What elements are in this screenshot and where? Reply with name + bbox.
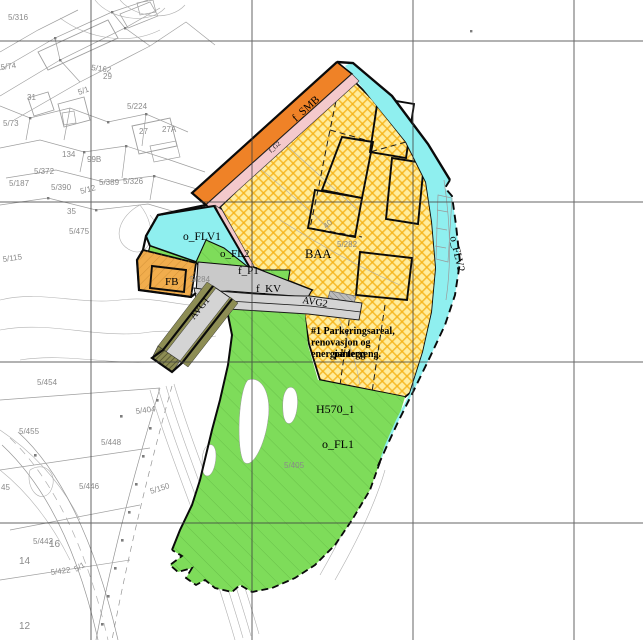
- zone-label: FB: [165, 276, 178, 288]
- cadastral-label: 5/115: [2, 252, 23, 264]
- zone-label: H570_1: [316, 402, 355, 416]
- cadastral-label: 14: [19, 556, 31, 567]
- zone-label: f_P1: [238, 265, 259, 277]
- cadastral-label: 5/12: [79, 183, 97, 196]
- map-svg: 5/3165/745/162295/1315/2245/732727A13499…: [0, 0, 643, 640]
- cadastral-label: 5/389: [99, 178, 120, 187]
- cadastral-label: 5/282: [337, 240, 358, 249]
- cadastral-label: 5/224: [127, 102, 148, 111]
- plan-zones-layer: [137, 62, 460, 592]
- cadastral-label: 5/405: [284, 461, 305, 470]
- cadastral-label: 5/372: [34, 167, 55, 176]
- cadastral-label: 5/422: [50, 565, 72, 577]
- cadastral-label: 134: [62, 150, 76, 159]
- cadastral-label: 5/455: [19, 427, 40, 436]
- cadastral-label: 29: [103, 72, 112, 81]
- plan-note-line: på terreng.: [334, 349, 382, 360]
- zone-label: o_FL1: [322, 437, 354, 451]
- cadastral-label: 5/326: [123, 177, 144, 186]
- cadastral-label: 5/74: [0, 61, 17, 72]
- zoning-plan-map-canvas[interactable]: 5/3165/745/162295/1315/2245/732727A13499…: [0, 0, 643, 640]
- cadastral-label: 5/390: [51, 183, 72, 192]
- cadastral-label: 31: [27, 93, 36, 102]
- cadastral-label: 5/446: [79, 482, 100, 491]
- cadastral-label: 5/150: [149, 481, 171, 496]
- cadastral-label: 99B: [87, 155, 101, 164]
- cadastral-label: 5/1: [77, 84, 91, 96]
- zone-label: o_FL2: [220, 248, 249, 260]
- cadastral-label: 5/448: [101, 438, 122, 447]
- cadastral-label: 5/454: [37, 378, 58, 387]
- cadastral-label: 27A: [162, 125, 177, 134]
- plan-note-line: renovasjon og: [311, 338, 371, 349]
- cadastral-label: 5/73: [3, 119, 19, 128]
- zone-label: BAA: [305, 247, 331, 261]
- cadastral-label: 5/316: [8, 13, 29, 22]
- cadastral-label: 12: [19, 621, 31, 632]
- zone-avg1: [152, 282, 238, 372]
- cadastral-label: 5/475: [69, 227, 90, 236]
- cadastral-label: 5/284: [190, 275, 211, 284]
- zone-label: o_FLV1: [183, 231, 221, 243]
- cadastral-label: 5/404: [135, 404, 157, 416]
- zone-label: f_KV: [256, 283, 281, 295]
- cadastral-label: 5/187: [9, 179, 30, 188]
- cadastral-label: 16: [49, 539, 61, 550]
- cadastral-label: 45: [1, 483, 10, 492]
- plan-note-line: #1 Parkeringsareal,: [311, 326, 395, 337]
- cadastral-label: 27: [139, 127, 148, 136]
- cadastral-label: 35: [67, 207, 76, 216]
